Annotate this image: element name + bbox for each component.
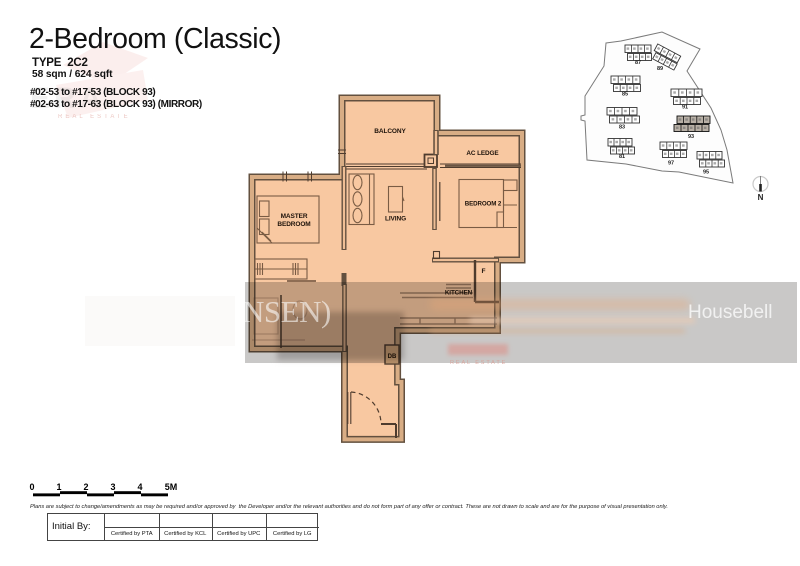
svg-text:3: 3 [110, 482, 115, 492]
svg-text:87: 87 [635, 60, 641, 66]
svg-text:83: 83 [619, 125, 625, 131]
svg-text:91: 91 [682, 105, 688, 111]
svg-text:89: 89 [657, 66, 663, 72]
svg-text:5M: 5M [165, 482, 178, 492]
svg-text:BEDROOM: BEDROOM [277, 221, 310, 228]
svg-text:93: 93 [688, 134, 694, 140]
svg-text:85: 85 [622, 92, 628, 98]
svg-text:BEDROOM 2: BEDROOM 2 [465, 201, 502, 208]
svg-text:4: 4 [137, 482, 142, 492]
svg-text:0: 0 [29, 482, 34, 492]
svg-text:97: 97 [668, 161, 674, 167]
svg-text:F: F [482, 268, 486, 275]
svg-text:LIVING: LIVING [385, 216, 406, 223]
svg-text:MASTER: MASTER [281, 213, 308, 220]
svg-text:N: N [758, 193, 764, 202]
svg-text:1: 1 [56, 482, 61, 492]
svg-text:81: 81 [619, 154, 625, 160]
svg-text:BALCONY: BALCONY [374, 128, 406, 135]
svg-text:95: 95 [703, 170, 709, 176]
svg-text:2: 2 [83, 482, 88, 492]
svg-text:AC LEDGE: AC LEDGE [466, 150, 499, 157]
